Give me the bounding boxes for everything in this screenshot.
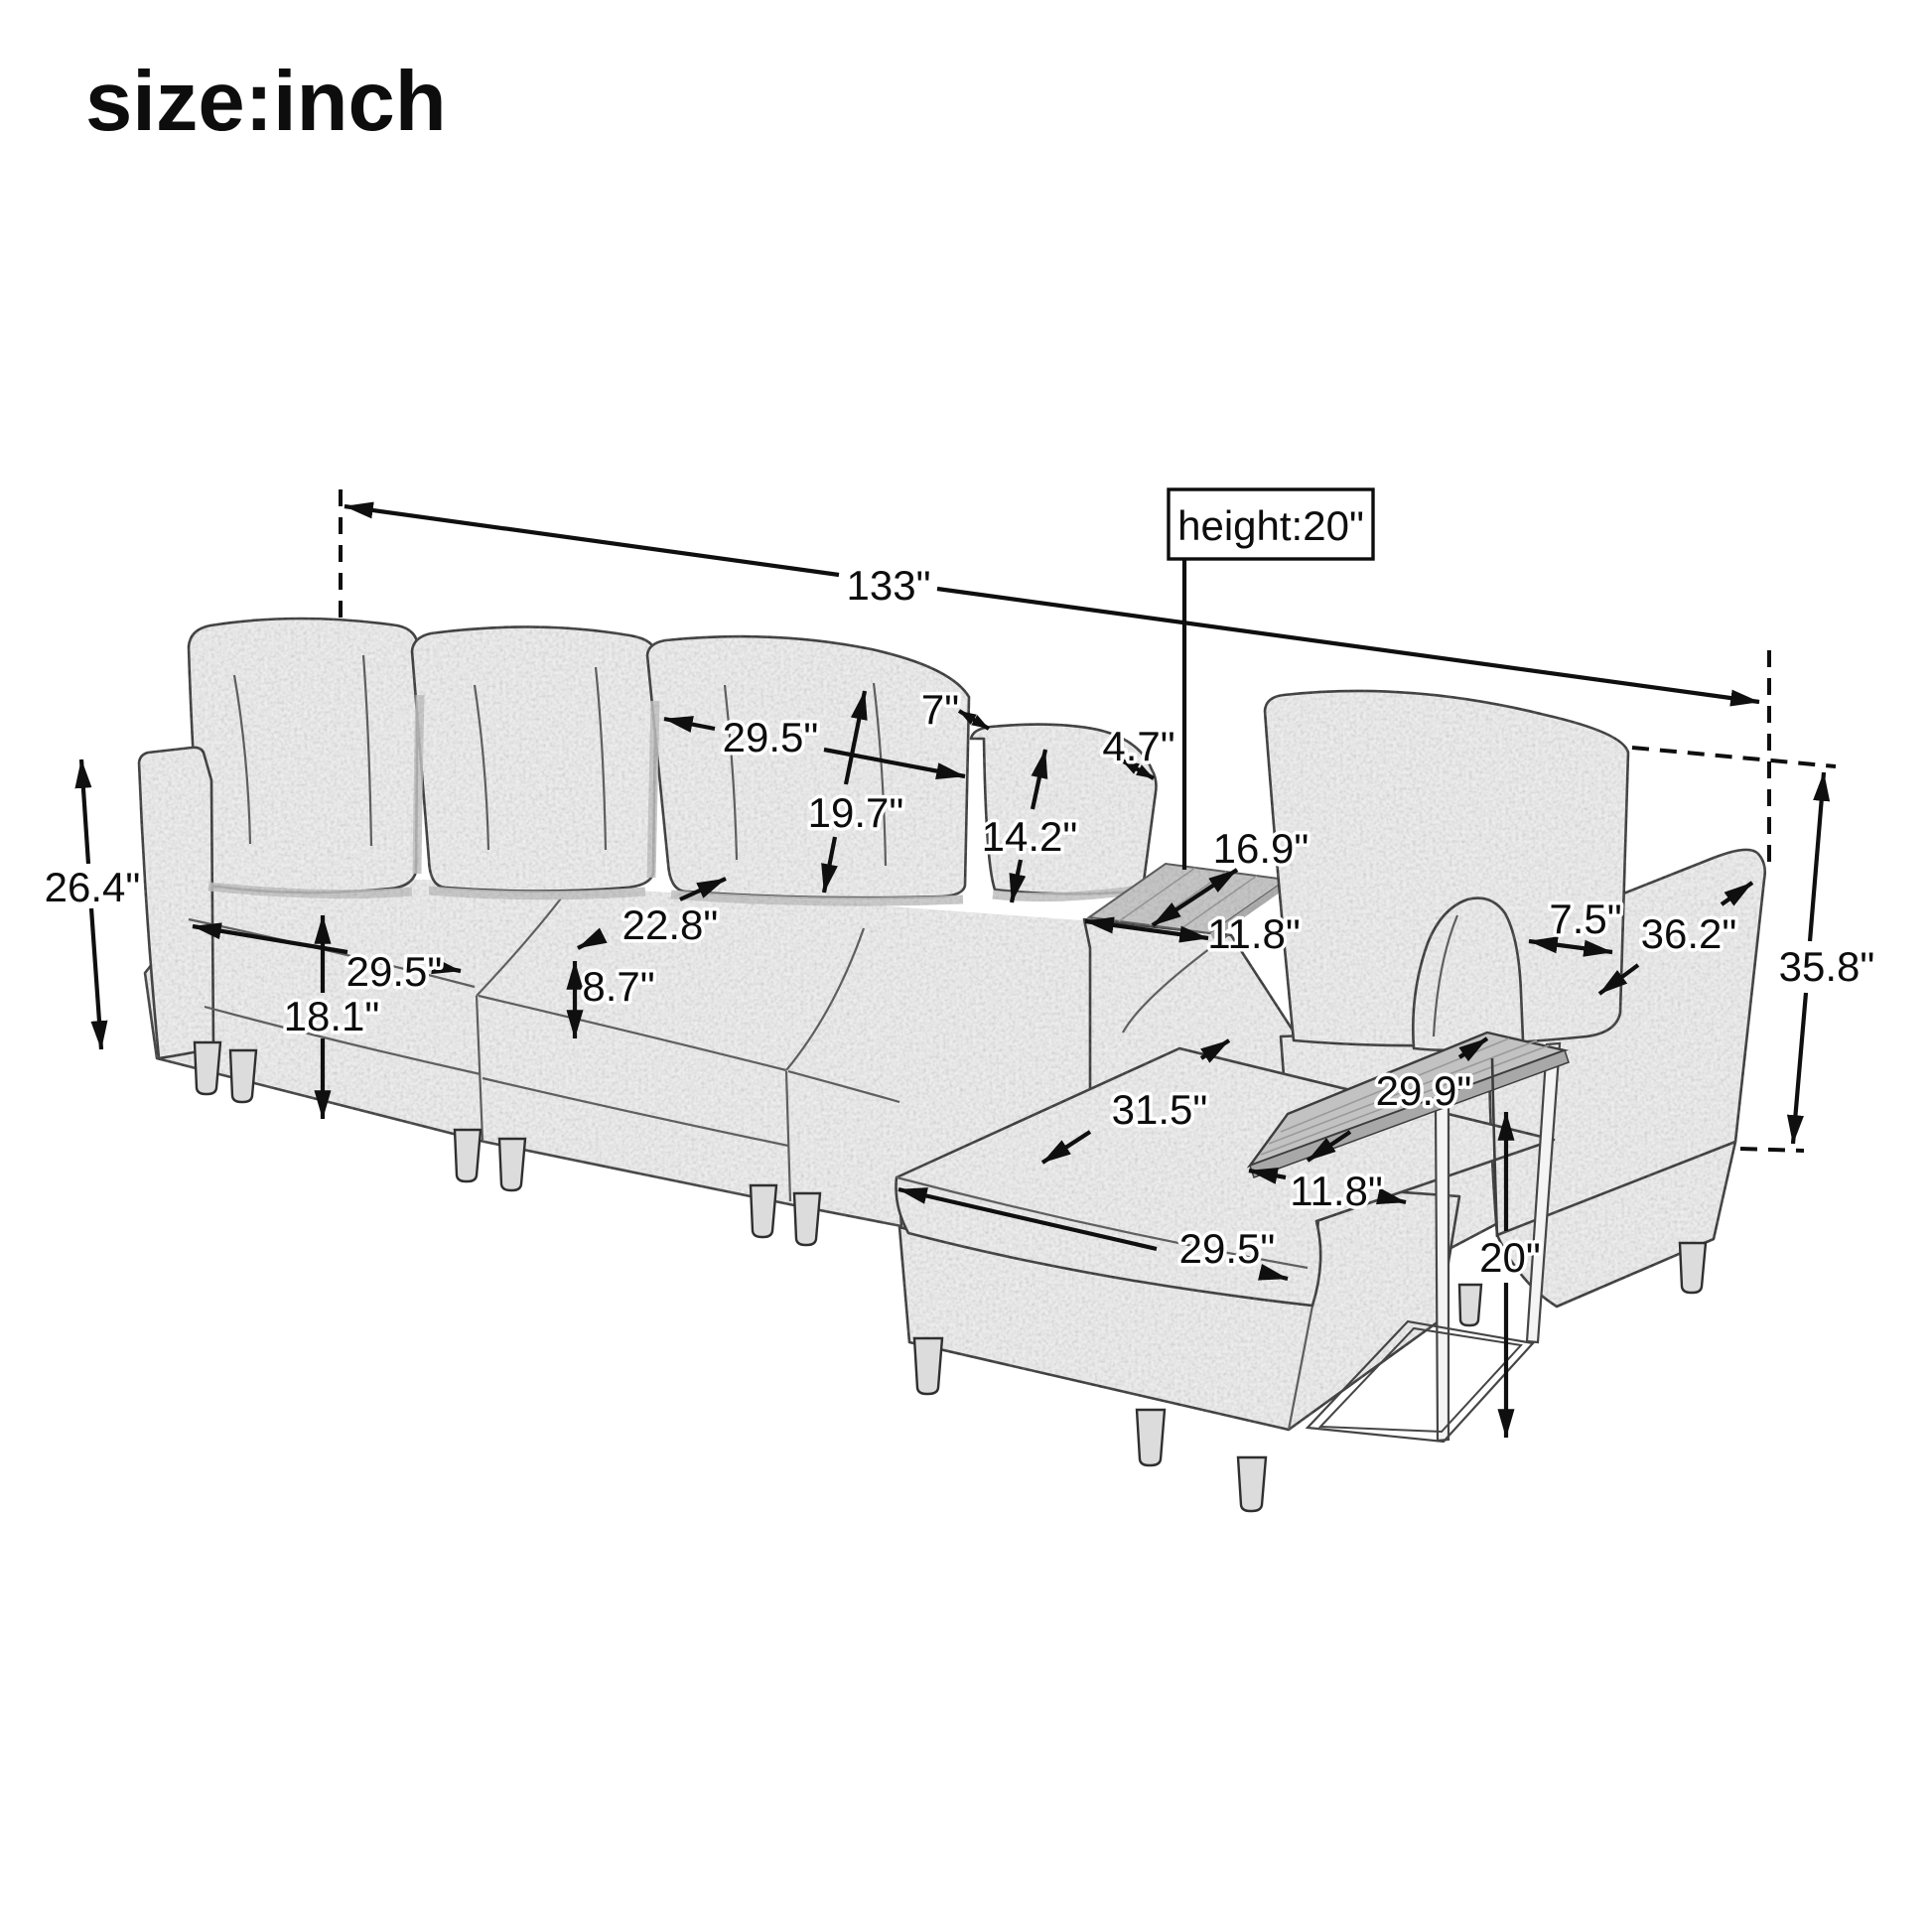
svg-text:29.5": 29.5" bbox=[1179, 1225, 1276, 1272]
svg-text:26.4": 26.4" bbox=[45, 864, 141, 910]
svg-text:35.8": 35.8" bbox=[1779, 943, 1875, 990]
svg-text:22.8": 22.8" bbox=[622, 901, 719, 948]
svg-text:14.2": 14.2" bbox=[982, 813, 1078, 860]
svg-text:36.2": 36.2" bbox=[1641, 910, 1737, 957]
svg-text:16.9": 16.9" bbox=[1213, 825, 1310, 872]
svg-text:11.8": 11.8" bbox=[1207, 910, 1301, 957]
svg-text:18.1": 18.1" bbox=[284, 993, 380, 1039]
svg-text:4.7": 4.7" bbox=[1102, 723, 1174, 769]
svg-text:29.5": 29.5" bbox=[723, 714, 819, 760]
svg-text:20": 20" bbox=[1479, 1234, 1541, 1281]
svg-text:133": 133" bbox=[847, 562, 931, 609]
svg-text:19.7": 19.7" bbox=[808, 789, 904, 836]
svg-text:size:inch: size:inch bbox=[85, 55, 447, 149]
svg-text:31.5": 31.5" bbox=[1112, 1086, 1208, 1133]
svg-text:8.7": 8.7" bbox=[582, 963, 654, 1010]
svg-text:11.8": 11.8" bbox=[1290, 1168, 1383, 1214]
svg-text:height:20": height:20" bbox=[1177, 502, 1364, 549]
svg-text:29.5": 29.5" bbox=[346, 948, 443, 995]
svg-text:7.5": 7.5" bbox=[1549, 896, 1621, 942]
svg-text:29.9": 29.9" bbox=[1376, 1067, 1472, 1114]
svg-text:7": 7" bbox=[921, 686, 959, 733]
